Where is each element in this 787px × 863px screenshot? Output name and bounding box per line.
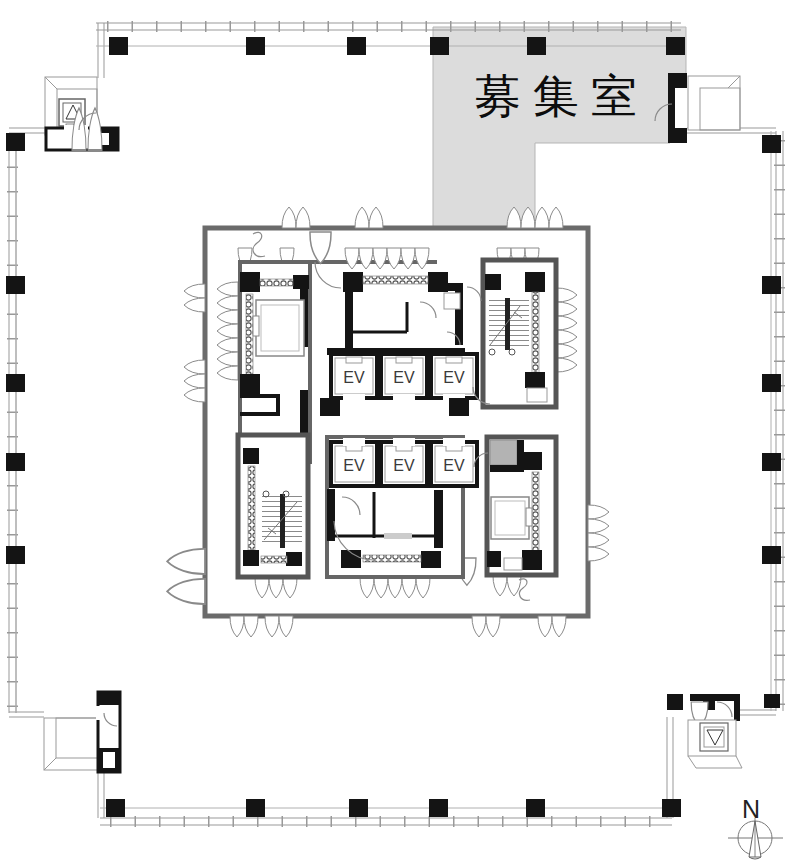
equipment-room	[256, 300, 304, 356]
column	[109, 37, 128, 55]
column	[429, 799, 448, 817]
core-room-lower-right	[487, 437, 556, 575]
north-label: N	[742, 795, 760, 823]
lower-elevator-bank: EV EV EV	[327, 437, 477, 577]
elevator-cell: EV	[331, 354, 377, 402]
column	[106, 799, 125, 817]
floor-plan-drawing: EV EV EV	[0, 0, 787, 863]
core-room-upper-left	[240, 262, 310, 462]
column	[430, 37, 449, 55]
elevator-cell: EV	[431, 438, 477, 486]
highlight-room	[490, 440, 517, 465]
elevator-label: EV	[393, 457, 415, 474]
elevator-cell: EV	[331, 438, 377, 486]
column	[6, 374, 25, 392]
elevator-label: EV	[393, 369, 415, 386]
column	[6, 276, 25, 294]
column	[762, 276, 781, 294]
building-core: EV EV EV	[167, 207, 609, 637]
column	[762, 546, 781, 564]
equipment-room	[491, 497, 529, 539]
column	[526, 799, 545, 817]
elevator-cell: EV	[431, 354, 477, 402]
vacancy-room-label: 募集室	[475, 71, 649, 122]
staircase-upper-right	[483, 260, 556, 407]
elevator-label: EV	[343, 369, 365, 386]
elevator-cell: EV	[381, 354, 427, 402]
column	[527, 37, 546, 55]
column	[762, 374, 781, 392]
column	[762, 135, 781, 153]
elevator-cell: EV	[381, 438, 427, 486]
column	[246, 37, 265, 55]
staircase-lower-left	[238, 435, 308, 577]
column	[6, 546, 25, 564]
column	[762, 453, 781, 471]
floor-plan-page: EV EV EV	[0, 0, 787, 863]
column	[662, 799, 681, 817]
elevator-label: EV	[343, 457, 365, 474]
column	[666, 37, 685, 55]
elevator-label: EV	[443, 369, 465, 386]
column	[349, 799, 368, 817]
column	[6, 133, 25, 151]
column	[246, 799, 265, 817]
column	[347, 37, 366, 55]
elevator-label: EV	[443, 457, 465, 474]
column	[6, 453, 25, 471]
